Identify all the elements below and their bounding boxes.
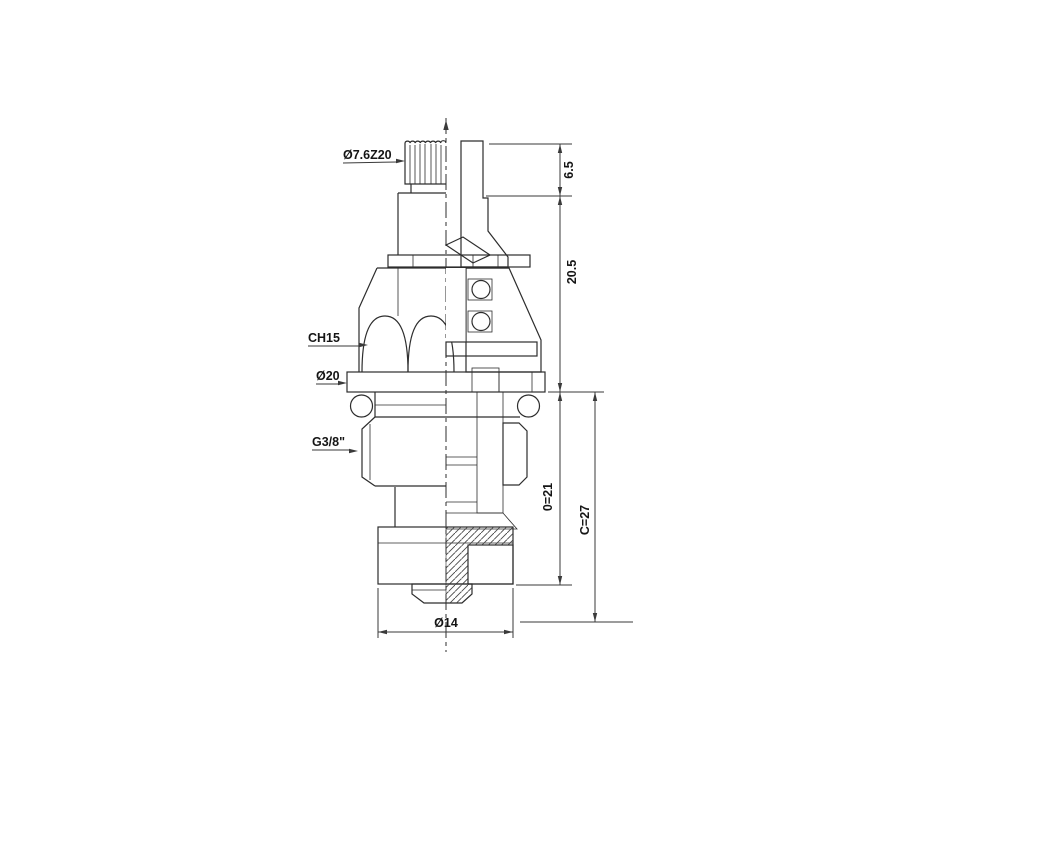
o-ring-right	[518, 395, 540, 417]
rubber-washer	[468, 545, 513, 584]
dim-upper-height: 20.5	[565, 260, 579, 284]
o-ring-middle	[472, 313, 490, 331]
bonnet-sleeve-section	[446, 141, 508, 267]
knurled-stem	[398, 141, 446, 193]
dim-o-length: 0=21	[541, 483, 555, 511]
thread-section	[362, 417, 527, 486]
label-flange-diameter: Ø20	[316, 369, 340, 383]
label-hex-size: CH15	[308, 331, 340, 345]
dim-c-length: C=27	[578, 505, 592, 535]
dim-base-diameter: Ø14	[434, 616, 458, 630]
lower-neck	[395, 487, 517, 529]
label-spline-diameter: Ø7.6Z20	[343, 148, 392, 162]
bonnet-hex-body	[359, 268, 541, 372]
valve-technical-drawing: Ø7.6Z20 CH15 Ø20 G3/8" Ø14 6.5 20.5 0=21…	[0, 0, 1037, 848]
gland-ring	[388, 255, 530, 267]
o-ring-upper	[472, 281, 490, 299]
label-thread-size: G3/8"	[312, 435, 345, 449]
valve-seat-tip	[412, 584, 472, 603]
o-ring-left	[351, 395, 373, 417]
drawing-page: Ø7.6Z20 CH15 Ø20 G3/8" Ø14 6.5 20.5 0=21…	[0, 0, 1037, 848]
neck-section	[375, 392, 520, 513]
dimensions: Ø7.6Z20 CH15 Ø20 G3/8" Ø14 6.5 20.5 0=21…	[308, 144, 633, 638]
dim-top-height: 6.5	[562, 161, 576, 178]
